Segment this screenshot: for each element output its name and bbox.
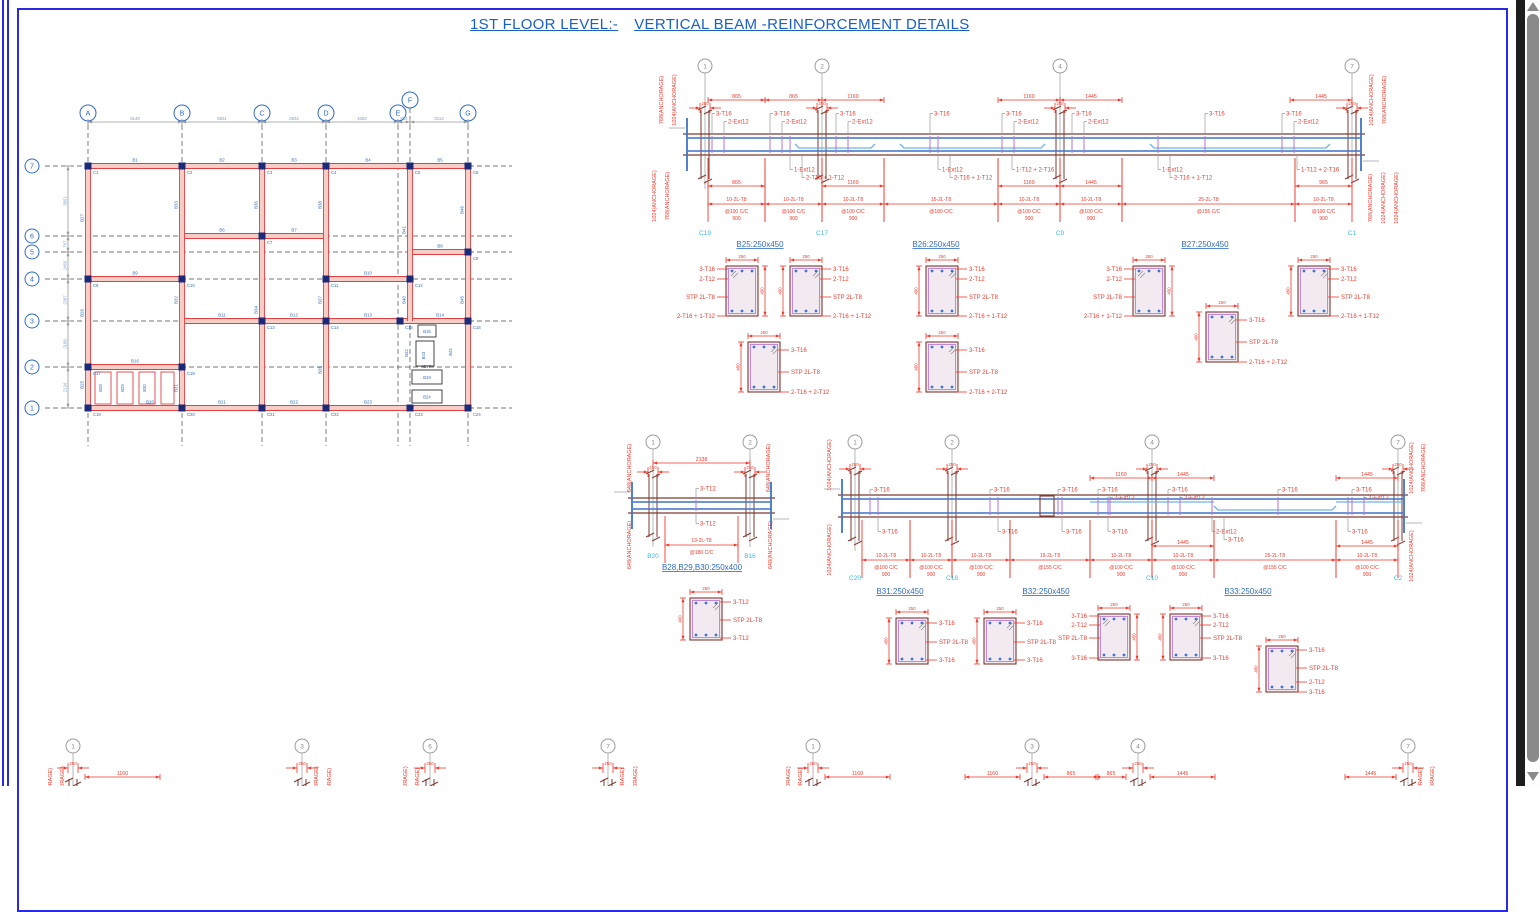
svg-text:3-T16: 3-T16 (1102, 488, 1118, 494)
svg-text:3-T16: 3-T16 (1341, 267, 1357, 273)
svg-text:2188: 2188 (63, 339, 68, 349)
svg-text:10-2L-T8: 10-2L-T8 (921, 553, 942, 559)
svg-text:C14: C14 (331, 325, 339, 330)
svg-text:B8: B8 (437, 244, 443, 249)
svg-text:768(ANCHORAGE): 768(ANCHORAGE) (798, 768, 804, 786)
svg-text:B27: B27 (80, 214, 85, 222)
svg-text:250: 250 (851, 462, 859, 467)
svg-text:3-T16: 3-T16 (1066, 530, 1082, 536)
svg-text:1024(ANCHORAGE): 1024(ANCHORAGE) (1394, 172, 1400, 224)
svg-text:C15: C15 (405, 325, 413, 330)
svg-text:865: 865 (789, 94, 798, 100)
svg-text:2-Ext12: 2-Ext12 (1114, 496, 1135, 502)
svg-text:2-T12: 2-T12 (1213, 623, 1229, 629)
svg-text:1160: 1160 (852, 771, 863, 777)
svg-text:2-Ext12: 2-Ext12 (1184, 496, 1205, 502)
svg-text:4: 4 (1136, 743, 1140, 750)
svg-text:C8: C8 (473, 256, 479, 261)
svg-text:4: 4 (30, 276, 34, 283)
svg-text:C12: C12 (415, 283, 423, 288)
svg-text:@100 C/C: @100 C/C (1355, 565, 1379, 571)
svg-text:B4: B4 (365, 158, 371, 163)
svg-text:1024(ANCHORAGE): 1024(ANCHORAGE) (1409, 442, 1415, 494)
svg-text:B23: B23 (364, 400, 372, 405)
svg-text:250: 250 (996, 606, 1004, 611)
svg-text:250: 250 (1145, 254, 1153, 259)
svg-text:450: 450 (914, 363, 919, 371)
svg-text:3-T16: 3-T16 (1027, 658, 1043, 664)
svg-text:2-T12: 2-T12 (1106, 277, 1122, 283)
svg-text:768(ANCHORAGE): 768(ANCHORAGE) (1368, 174, 1374, 222)
svg-text:250: 250 (1394, 462, 1402, 467)
svg-text:C9: C9 (1056, 230, 1065, 237)
svg-text:B5: B5 (437, 158, 443, 163)
svg-text:B25:250x450: B25:250x450 (736, 240, 784, 249)
svg-text:B26:250x450: B26:250x450 (912, 240, 960, 249)
svg-text:@100 C/C: @100 C/C (1079, 209, 1103, 215)
svg-text:STP 2L-T8: STP 2L-T8 (1027, 640, 1057, 646)
svg-text:@100 C/C: @100 C/C (1017, 209, 1041, 215)
svg-text:900: 900 (1179, 572, 1188, 578)
svg-text:3-T16: 3-T16 (1071, 656, 1087, 662)
svg-text:2-Ext12: 2-Ext12 (1216, 530, 1237, 536)
svg-text:3-T16: 3-T16 (1249, 318, 1265, 324)
svg-text:3113: 3113 (434, 116, 444, 121)
svg-text:STP 2L-T8: STP 2L-T8 (833, 295, 863, 301)
svg-text:10-2L-T8: 10-2L-T8 (726, 197, 747, 203)
svg-text:768(ANCHORAGE): 768(ANCHORAGE) (1418, 768, 1424, 786)
svg-text:1024(ANCHORAGE): 1024(ANCHORAGE) (652, 170, 658, 222)
svg-text:250: 250 (1218, 300, 1226, 305)
svg-text:@100 C/C: @100 C/C (782, 209, 806, 215)
svg-text:3-T16: 3-T16 (1356, 488, 1372, 494)
svg-text:C20: C20 (187, 412, 195, 417)
svg-text:2-Ext12: 2-Ext12 (1368, 496, 1389, 502)
svg-text:@100 C/C: @100 C/C (1312, 209, 1336, 215)
svg-text:3-T16: 3-T16 (874, 488, 890, 494)
svg-text:1024(ANCHORAGE): 1024(ANCHORAGE) (1430, 766, 1436, 786)
elevation-b28: 1250225021383-T123-T1213-2L-T8@180 C/CB2… (614, 435, 789, 572)
svg-text:B38: B38 (318, 201, 323, 209)
svg-text:1024(ANCHORAGE): 1024(ANCHORAGE) (672, 74, 678, 126)
beam-sections: 2504503-T162-T12STP 2L-T82-T16 + 1-T1225… (677, 254, 1380, 696)
svg-text:3951: 3951 (63, 196, 68, 206)
svg-text:C5: C5 (415, 170, 421, 175)
svg-text:1024(ANCHORAGE): 1024(ANCHORAGE) (1381, 172, 1387, 224)
svg-text:C24: C24 (473, 412, 481, 417)
svg-text:B26: B26 (80, 309, 85, 317)
svg-text:6921: 6921 (217, 116, 227, 121)
svg-text:450: 450 (1158, 633, 1163, 641)
svg-text:10-2L-T8: 10-2L-T8 (1357, 553, 1378, 559)
svg-text:1024(ANCHORAGE): 1024(ANCHORAGE) (827, 524, 833, 576)
svg-text:1445: 1445 (1177, 771, 1189, 777)
svg-text:B16: B16 (744, 553, 756, 560)
svg-text:250: 250 (1110, 602, 1118, 607)
svg-text:STP 2L-T8: STP 2L-T8 (939, 640, 969, 646)
svg-text:1160: 1160 (1115, 472, 1126, 478)
svg-text:2-T16 + 2-T12: 2-T16 + 2-T12 (791, 390, 830, 396)
svg-text:@100 C/C: @100 C/C (874, 565, 898, 571)
svg-text:STP 2L-T8: STP 2L-T8 (969, 295, 999, 301)
svg-text:F: F (408, 97, 412, 104)
scroll-up-arrow-icon[interactable] (1527, 2, 1539, 11)
svg-text:2-Ext12: 2-Ext12 (852, 120, 873, 126)
svg-text:10-2L-T8: 10-2L-T8 (1173, 553, 1194, 559)
svg-text:2: 2 (950, 439, 954, 446)
floor-plan: B1B2B3B4B5B6B7B8B9B10B11B12B13B14B16B20B… (25, 92, 512, 446)
svg-text:1445: 1445 (1085, 94, 1097, 100)
svg-text:865: 865 (732, 94, 741, 100)
scroll-down-arrow-icon[interactable] (1527, 772, 1539, 781)
svg-text:1160: 1160 (1023, 180, 1034, 186)
svg-text:2-Ext12: 2-Ext12 (786, 120, 807, 126)
svg-text:250: 250 (802, 254, 810, 259)
svg-text:3-T12: 3-T12 (700, 487, 716, 493)
svg-text:G: G (465, 110, 470, 117)
svg-text:B28,B29,B30:250x400: B28,B29,B30:250x400 (662, 563, 743, 572)
svg-text:C9: C9 (93, 283, 99, 288)
svg-text:C17: C17 (816, 230, 828, 237)
svg-text:3-T16: 3-T16 (1309, 648, 1325, 654)
svg-text:B2: B2 (219, 158, 225, 163)
svg-text:250: 250 (1134, 761, 1142, 766)
svg-text:10-2L-T8: 10-2L-T8 (971, 553, 992, 559)
svg-text:B10: B10 (364, 271, 372, 276)
svg-text:10-2L-T8: 10-2L-T8 (1081, 197, 1102, 203)
svg-text:250: 250 (298, 761, 306, 766)
viewport-edge (1516, 0, 1525, 786)
svg-text:3-T16: 3-T16 (1062, 488, 1078, 494)
svg-text:1445: 1445 (1365, 771, 1377, 777)
svg-text:B35: B35 (318, 366, 323, 374)
svg-text:B34: B34 (254, 306, 259, 314)
svg-text:B21: B21 (218, 400, 226, 405)
drawing-title-level: 1ST FLOOR LEVEL:- (470, 16, 618, 33)
svg-text:B36: B36 (254, 201, 259, 209)
svg-text:25-2L-T8: 25-2L-T8 (1265, 553, 1286, 559)
svg-text:STP 2L-T8: STP 2L-T8 (686, 295, 716, 301)
svg-text:648(ANCHORAGE): 648(ANCHORAGE) (768, 521, 774, 569)
svg-text:B14: B14 (436, 313, 444, 318)
svg-text:C22: C22 (331, 412, 339, 417)
svg-text:900: 900 (789, 216, 798, 222)
svg-text:450: 450 (1167, 287, 1172, 295)
drawing-title: 1ST FLOOR LEVEL:- VERTICAL BEAM -REINFOR… (470, 16, 970, 33)
svg-text:900: 900 (732, 216, 741, 222)
svg-text:C1: C1 (1348, 230, 1357, 237)
svg-text:1024(ANCHORAGE): 1024(ANCHORAGE) (633, 766, 639, 786)
svg-text:1024(ANCHORAGE): 1024(ANCHORAGE) (403, 766, 409, 786)
svg-text:10-2L-T8: 10-2L-T8 (843, 197, 864, 203)
svg-text:3-T16: 3-T16 (1309, 690, 1325, 696)
svg-text:2-T16 + 1-T12: 2-T16 + 1-T12 (1174, 176, 1213, 182)
svg-text:C18: C18 (187, 371, 195, 376)
svg-text:450: 450 (1254, 665, 1259, 673)
svg-text:3-T16: 3-T16 (969, 348, 985, 354)
svg-text:C11: C11 (331, 283, 339, 288)
svg-text:B33:250x450: B33:250x450 (1224, 587, 1272, 596)
svg-text:1160: 1160 (117, 771, 128, 777)
svg-text:250: 250 (1278, 634, 1286, 639)
svg-text:3-T16: 3-T16 (1352, 530, 1368, 536)
svg-text:B20: B20 (647, 553, 659, 560)
svg-text:900: 900 (1025, 216, 1034, 222)
svg-text:1160: 1160 (847, 180, 858, 186)
svg-text:B3: B3 (291, 158, 297, 163)
svg-text:3-T16: 3-T16 (1172, 488, 1188, 494)
svg-text:B42: B42 (404, 349, 409, 357)
svg-text:1445: 1445 (1085, 180, 1097, 186)
svg-text:3-T16: 3-T16 (1286, 112, 1302, 118)
svg-text:3-T16: 3-T16 (1112, 530, 1128, 536)
svg-text:3-T16: 3-T16 (1027, 621, 1043, 627)
svg-text:250: 250 (738, 254, 746, 259)
svg-text:2: 2 (820, 63, 824, 70)
svg-text:C21: C21 (267, 412, 275, 417)
vertical-scrollbar-thumb[interactable] (1527, 14, 1539, 762)
svg-text:3-T16: 3-T16 (939, 621, 955, 627)
svg-text:1: 1 (30, 405, 34, 412)
svg-text:648(ANCHORAGE): 648(ANCHORAGE) (415, 768, 421, 786)
svg-text:@100 C/C: @100 C/C (1171, 565, 1195, 571)
svg-text:3-T16: 3-T16 (994, 488, 1010, 494)
svg-text:1024(ANCHORAGE): 1024(ANCHORAGE) (827, 439, 833, 491)
svg-text:@155 C/C: @155 C/C (1197, 209, 1221, 215)
svg-text:250: 250 (1148, 462, 1156, 467)
svg-text:STP 2L-T8: STP 2L-T8 (791, 370, 821, 376)
svg-text:2-T16 + 2-T12: 2-T16 + 2-T12 (969, 390, 1008, 396)
svg-text:B: B (180, 110, 185, 117)
svg-text:768(ANCHORAGE): 768(ANCHORAGE) (1382, 76, 1388, 124)
svg-text:450: 450 (1132, 633, 1137, 641)
bottom-row-elevations: 1250768(ANCHORAGE)1024(ANCHORAGE)1160325… (48, 739, 1436, 786)
svg-text:4: 4 (1150, 439, 1154, 446)
svg-text:@180 C/C: @180 C/C (929, 209, 953, 215)
svg-text:3-T16: 3-T16 (1213, 614, 1229, 620)
svg-text:1445: 1445 (1361, 540, 1373, 546)
svg-text:965: 965 (1319, 180, 1328, 186)
svg-text:1024(ANCHORAGE): 1024(ANCHORAGE) (786, 766, 792, 786)
svg-text:250: 250 (1404, 761, 1412, 766)
svg-text:3-T16: 3-T16 (934, 112, 950, 118)
svg-text:2: 2 (30, 364, 34, 371)
svg-text:3-T16: 3-T16 (1228, 538, 1244, 544)
svg-text:450: 450 (884, 637, 889, 645)
svg-text:7: 7 (606, 743, 610, 750)
svg-text:768(ANCHORAGE): 768(ANCHORAGE) (659, 76, 665, 124)
svg-text:C19: C19 (699, 230, 711, 237)
svg-text:1-Ext12: 1-Ext12 (1162, 168, 1183, 174)
svg-text:1: 1 (811, 743, 815, 750)
svg-text:B15: B15 (423, 329, 431, 334)
svg-text:3-T16: 3-T16 (716, 112, 732, 118)
svg-text:3-T16: 3-T16 (1106, 267, 1122, 273)
svg-text:768(ANCHORAGE): 768(ANCHORAGE) (665, 172, 671, 220)
svg-text:900: 900 (927, 572, 936, 578)
svg-text:250: 250 (809, 761, 817, 766)
cad-canvas[interactable]: B1B2B3B4B5B6B7B8B9B10B11B12B13B14B16B20B… (0, 0, 1540, 786)
svg-text:2-Ext12: 2-Ext12 (1018, 120, 1039, 126)
svg-text:10-2L-T8: 10-2L-T8 (1111, 553, 1132, 559)
svg-text:B30: B30 (142, 384, 147, 392)
svg-text:C18: C18 (946, 575, 958, 582)
svg-text:3-T16: 3-T16 (882, 530, 898, 536)
svg-text:C6: C6 (473, 170, 479, 175)
svg-text:10-2L-T8: 10-2L-T8 (1313, 197, 1334, 203)
svg-text:1-T12 + 2-T16: 1-T12 + 2-T16 (1016, 168, 1055, 174)
svg-text:15-2L-T8: 15-2L-T8 (931, 197, 952, 203)
svg-text:B43: B43 (421, 351, 426, 359)
svg-text:@100 C/C: @100 C/C (969, 565, 993, 571)
svg-text:900: 900 (849, 216, 858, 222)
svg-text:1024(ANCHORAGE): 1024(ANCHORAGE) (1369, 74, 1375, 126)
svg-text:2-T16 + 1-T12: 2-T16 + 1-T12 (677, 314, 716, 320)
svg-text:250: 250 (938, 330, 946, 335)
svg-text:C23: C23 (415, 412, 423, 417)
svg-text:@180 C/C: @180 C/C (690, 550, 714, 556)
svg-text:6: 6 (428, 743, 432, 750)
svg-text:3-T16: 3-T16 (1282, 488, 1298, 494)
svg-text:3-T16: 3-T16 (791, 348, 807, 354)
svg-text:STP 2L-T8: STP 2L-T8 (1213, 636, 1243, 642)
svg-text:2-T16 + 1-T12: 2-T16 + 1-T12 (806, 176, 845, 182)
svg-text:1024(ANCHORAGE): 1024(ANCHORAGE) (314, 766, 320, 786)
svg-text:7: 7 (1350, 63, 1354, 70)
svg-text:900: 900 (1363, 572, 1372, 578)
svg-text:A: A (86, 110, 91, 117)
svg-text:B19: B19 (423, 375, 431, 380)
svg-text:2-Ext12: 2-Ext12 (728, 120, 749, 126)
svg-text:2-Ext12: 2-Ext12 (1088, 120, 1109, 126)
svg-text:768(ANCHORAGE): 768(ANCHORAGE) (327, 768, 333, 786)
svg-text:865: 865 (1107, 771, 1116, 777)
svg-text:3-T16: 3-T16 (833, 267, 849, 273)
svg-text:1-Ext12: 1-Ext12 (794, 168, 815, 174)
svg-text:1445: 1445 (1177, 472, 1189, 478)
svg-text:900: 900 (977, 572, 986, 578)
svg-text:1: 1 (853, 439, 857, 446)
drawing-viewer: 1ST FLOOR LEVEL:- VERTICAL BEAM -REINFOR… (0, 0, 1540, 786)
svg-text:900: 900 (1319, 216, 1328, 222)
svg-text:C7: C7 (267, 240, 273, 245)
svg-text:814: 814 (400, 116, 408, 121)
svg-text:STP 2L-T8: STP 2L-T8 (1341, 295, 1371, 301)
svg-text:7: 7 (1406, 743, 1410, 750)
svg-text:B37: B37 (318, 296, 323, 304)
svg-text:900: 900 (1087, 216, 1096, 222)
svg-text:B40: B40 (402, 296, 407, 304)
svg-text:C10: C10 (1146, 575, 1158, 582)
svg-text:2-T12: 2-T12 (699, 277, 715, 283)
svg-text:B32:250x450: B32:250x450 (1022, 587, 1070, 596)
svg-text:B33: B33 (174, 201, 179, 209)
svg-text:2-T16 + 1-T12: 2-T16 + 1-T12 (1084, 314, 1123, 320)
svg-text:5148: 5148 (130, 116, 140, 121)
svg-text:3: 3 (300, 743, 304, 750)
svg-text:1-T12 + 2-T16: 1-T12 + 2-T16 (1301, 168, 1340, 174)
svg-text:5: 5 (30, 249, 34, 256)
svg-text:C2: C2 (1394, 575, 1403, 582)
svg-text:865: 865 (1067, 771, 1076, 777)
svg-text:250: 250 (908, 606, 916, 611)
svg-text:250: 250 (69, 761, 77, 766)
svg-text:B6: B6 (219, 228, 225, 233)
svg-text:6: 6 (30, 233, 34, 240)
svg-text:1445: 1445 (1177, 540, 1189, 546)
svg-text:2-T12: 2-T12 (1341, 277, 1357, 283)
svg-text:1160: 1160 (847, 94, 858, 100)
svg-text:1445: 1445 (1315, 94, 1327, 100)
svg-text:B1: B1 (132, 158, 138, 163)
svg-text:3-T12: 3-T12 (700, 522, 716, 528)
svg-text:250: 250 (760, 330, 768, 335)
drawing-title-subject: VERTICAL BEAM -REINFORCEMENT DETAILS (634, 16, 969, 33)
svg-text:3-T16: 3-T16 (774, 112, 790, 118)
svg-text:STP 2L-T8: STP 2L-T8 (1309, 666, 1339, 672)
svg-text:768(ANCHORAGE): 768(ANCHORAGE) (620, 768, 626, 786)
svg-text:1024(ANCHORAGE): 1024(ANCHORAGE) (60, 766, 66, 786)
svg-text:@155 C/C: @155 C/C (1038, 565, 1062, 571)
svg-text:3-T16: 3-T16 (840, 112, 856, 118)
svg-text:2-T16 + 1-T12: 2-T16 + 1-T12 (833, 314, 872, 320)
svg-text:3-T16: 3-T16 (699, 267, 715, 273)
svg-text:C2: C2 (187, 170, 193, 175)
svg-text:250: 250 (604, 761, 612, 766)
svg-text:1: 1 (651, 439, 655, 446)
svg-text:B22: B22 (290, 400, 298, 405)
svg-text:10-2L-T8: 10-2L-T8 (783, 197, 804, 203)
svg-text:2-T16 + 1-T12: 2-T16 + 1-T12 (1341, 314, 1380, 320)
svg-text:B28: B28 (98, 384, 103, 392)
svg-text:2-T12: 2-T12 (969, 277, 985, 283)
svg-text:B25: B25 (80, 381, 85, 389)
svg-text:3932: 3932 (289, 116, 299, 121)
svg-text:2: 2 (748, 439, 752, 446)
svg-text:B16: B16 (131, 359, 139, 364)
svg-text:B45: B45 (460, 296, 465, 304)
svg-text:7: 7 (30, 163, 34, 170)
svg-text:@100 C/C: @100 C/C (725, 209, 749, 215)
svg-text:B29: B29 (120, 384, 125, 392)
svg-text:768(ANCHORAGE): 768(ANCHORAGE) (1421, 444, 1427, 492)
svg-text:C20: C20 (849, 575, 861, 582)
svg-text:C: C (259, 110, 264, 117)
svg-text:450: 450 (972, 637, 977, 645)
svg-text:1024(ANCHORAGE): 1024(ANCHORAGE) (1409, 530, 1415, 582)
svg-text:3-T16: 3-T16 (1209, 112, 1225, 118)
svg-text:250: 250 (1182, 602, 1190, 607)
svg-text:2134: 2134 (63, 382, 68, 392)
svg-text:B46: B46 (460, 206, 465, 214)
svg-text:865: 865 (732, 180, 741, 186)
svg-text:13-2L-T8: 13-2L-T8 (691, 538, 712, 544)
svg-text:768(ANCHORAGE): 768(ANCHORAGE) (48, 768, 54, 786)
svg-text:25-2L-T8: 25-2L-T8 (1198, 197, 1219, 203)
svg-text:1: 1 (71, 743, 75, 750)
elevation-mid: 1250225042507250116014451445144514453-T1… (824, 435, 1427, 596)
svg-text:@100 C/C: @100 C/C (1109, 565, 1133, 571)
svg-text:C13: C13 (267, 325, 275, 330)
svg-text:4060: 4060 (357, 116, 367, 121)
svg-text:4: 4 (1058, 63, 1062, 70)
svg-text:767: 767 (63, 240, 68, 248)
svg-text:C4: C4 (331, 170, 337, 175)
svg-text:B13: B13 (364, 313, 372, 318)
svg-text:3-T16: 3-T16 (1213, 656, 1229, 662)
svg-text:250: 250 (938, 254, 946, 259)
svg-text:648(ANCHORAGE): 648(ANCHORAGE) (627, 444, 633, 492)
